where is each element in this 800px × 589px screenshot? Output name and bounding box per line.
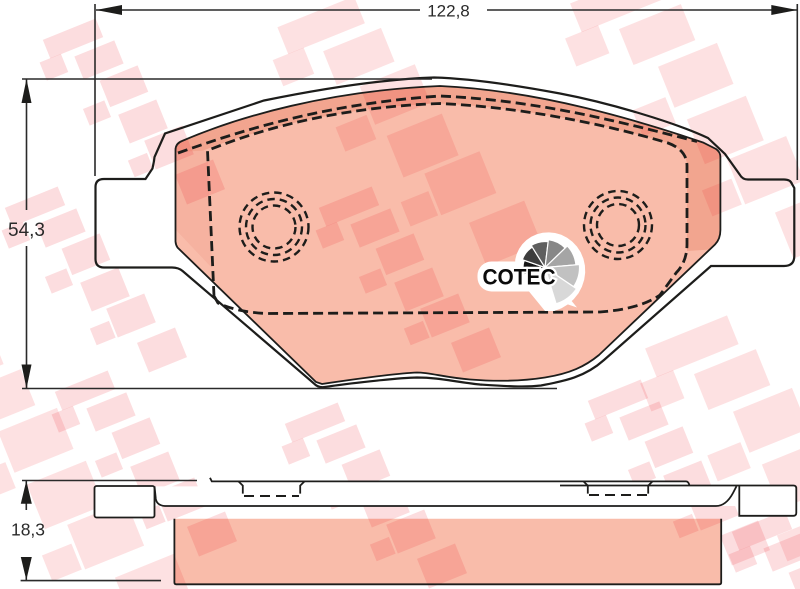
svg-text:18,3: 18,3 — [11, 520, 45, 540]
svg-text:54,3: 54,3 — [8, 220, 45, 241]
svg-text:COTEC: COTEC — [483, 264, 556, 289]
svg-text:122,8: 122,8 — [427, 2, 470, 21]
